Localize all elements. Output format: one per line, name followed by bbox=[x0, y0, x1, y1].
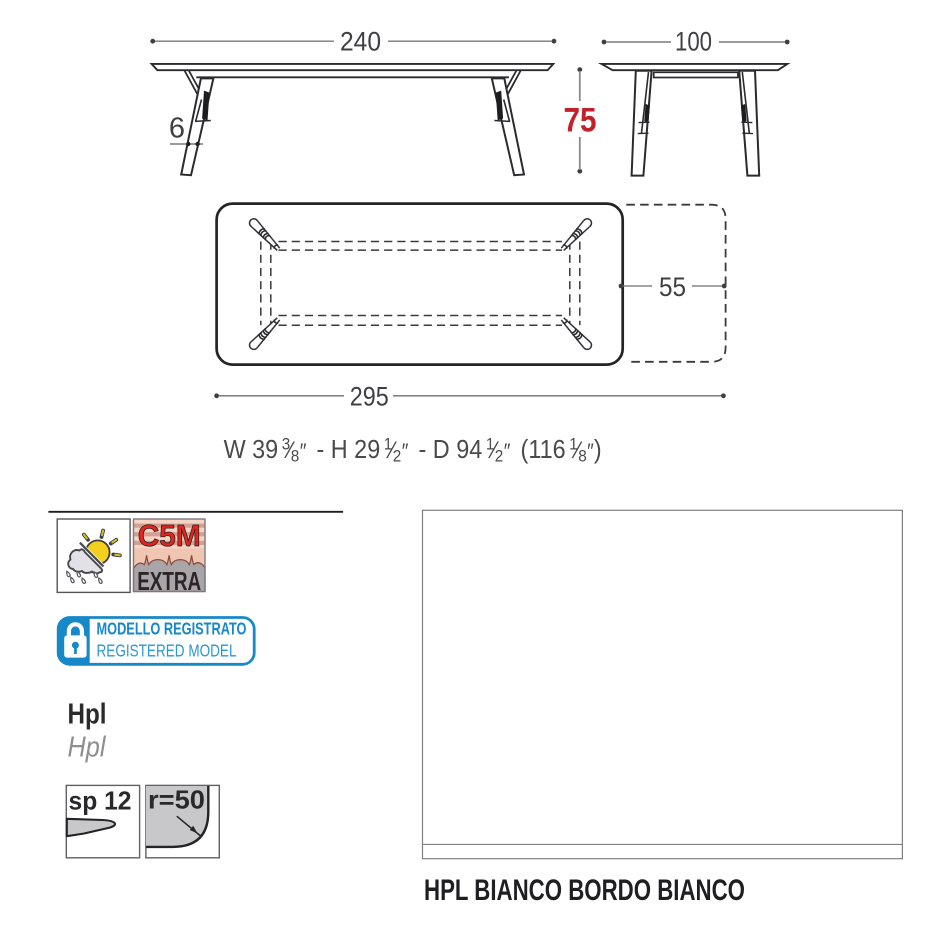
svg-text:295: 295 bbox=[350, 382, 389, 412]
svg-text:REGISTERED MODEL: REGISTERED MODEL bbox=[97, 641, 237, 661]
svg-text:C5M: C5M bbox=[138, 518, 201, 553]
svg-text:6: 6 bbox=[169, 112, 185, 144]
svg-text:55: 55 bbox=[659, 272, 686, 302]
svg-text:240: 240 bbox=[340, 26, 381, 56]
svg-text:Hpl: Hpl bbox=[68, 732, 107, 764]
svg-text:HPL BIANCO BORDO BIANCO: HPL BIANCO BORDO BIANCO bbox=[424, 874, 745, 907]
svg-text:100: 100 bbox=[675, 26, 712, 56]
svg-text:Hpl: Hpl bbox=[68, 699, 107, 731]
svg-text:r=50: r=50 bbox=[148, 785, 205, 815]
svg-text:MODELLO REGISTRATO: MODELLO REGISTRATO bbox=[97, 619, 247, 639]
svg-text:W 393⁄8″ - H 291⁄2″ - D 941⁄2″: W 393⁄8″ - H 291⁄2″ - D 941⁄2″ (1161⁄8″) bbox=[224, 435, 602, 466]
svg-text:sp 12: sp 12 bbox=[69, 786, 132, 816]
svg-text:75: 75 bbox=[564, 102, 597, 140]
